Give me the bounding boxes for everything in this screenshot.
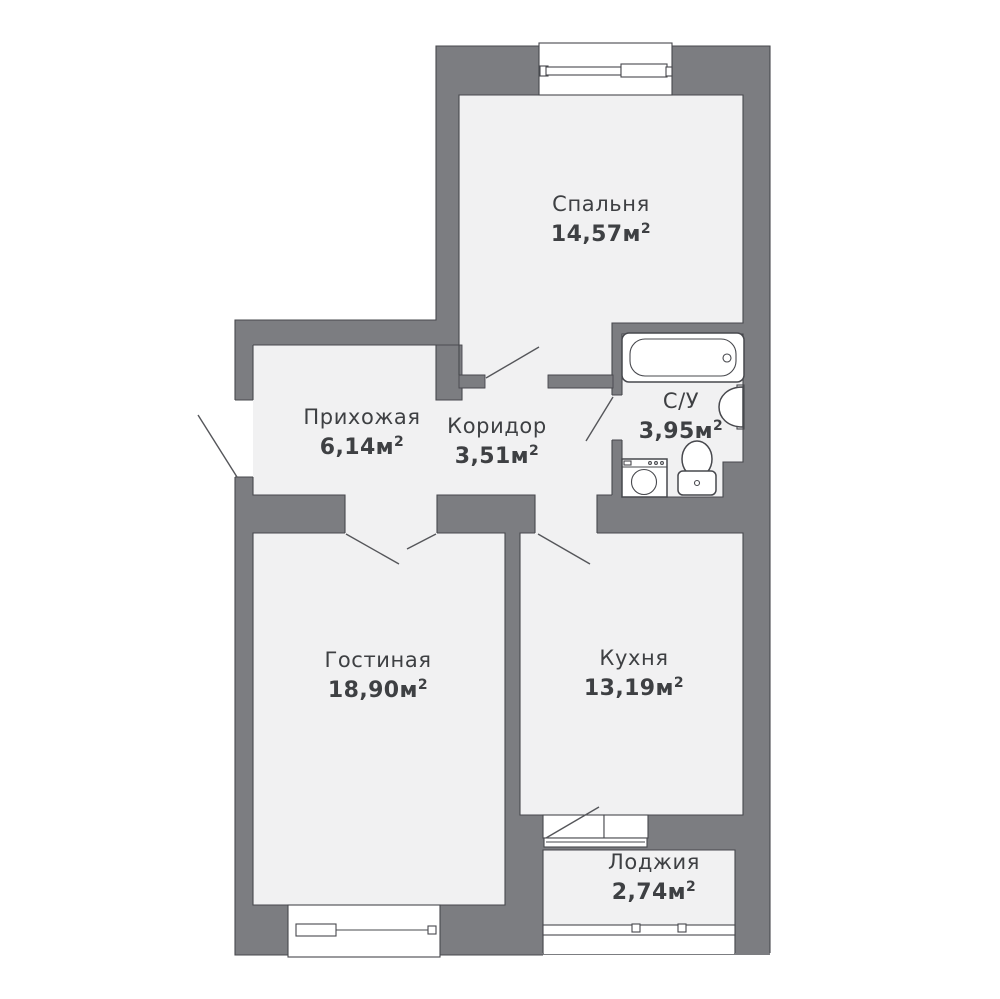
- living-room-window: [288, 905, 440, 957]
- room-name: Коридор: [447, 414, 547, 438]
- room-label-corridor: Коридор 3,51м2: [447, 414, 547, 470]
- floor-plan: Спальня 14,57м2 С/У 3,95м2 Прихожая 6,14…: [0, 0, 1000, 999]
- wall-bedroom-bottom-left: [459, 375, 485, 388]
- living-door-opening: [345, 495, 437, 533]
- loggia-glazing: [543, 924, 735, 954]
- room-name: Прихожая: [303, 405, 420, 429]
- room-label-kitchen: Кухня 13,19м2: [584, 646, 684, 702]
- room-name: Лоджия: [608, 850, 700, 874]
- room-area: 13,19м2: [584, 670, 684, 702]
- entrance-door-swing-line: [198, 415, 237, 477]
- room-area: 3,95м2: [639, 413, 723, 445]
- room-name: Спальня: [551, 192, 651, 216]
- room-name: Гостиная: [324, 648, 431, 672]
- room-label-hallway: Прихожая 6,14м2: [303, 405, 420, 461]
- bedroom-window: [539, 43, 672, 95]
- room-label-living: Гостиная 18,90м2: [324, 648, 431, 704]
- room-area: 6,14м2: [303, 429, 420, 461]
- room-label-bathroom: С/У 3,95м2: [639, 389, 723, 445]
- room-name: С/У: [639, 389, 723, 413]
- room-area: 3,51м2: [447, 438, 547, 470]
- wall-bedroom-bottom-right: [548, 375, 613, 388]
- room-area: 18,90м2: [324, 672, 431, 704]
- kitchen-door-opening: [535, 495, 597, 533]
- room-label-loggia: Лоджия 2,74м2: [608, 850, 700, 906]
- entrance-door-opening: [235, 400, 253, 477]
- toilet: [678, 441, 716, 495]
- washing-machine: [622, 459, 667, 497]
- floor-plan-drawing: [0, 0, 1000, 999]
- room-label-bedroom: Спальня 14,57м2: [551, 192, 651, 248]
- bathroom-door-opening: [612, 395, 622, 440]
- room-living-floor: [253, 533, 505, 905]
- bathtub: [622, 333, 744, 382]
- room-name: Кухня: [584, 646, 684, 670]
- wall-pilaster-hallway: [436, 345, 462, 400]
- room-area: 14,57м2: [551, 216, 651, 248]
- room-area: 2,74м2: [608, 874, 700, 906]
